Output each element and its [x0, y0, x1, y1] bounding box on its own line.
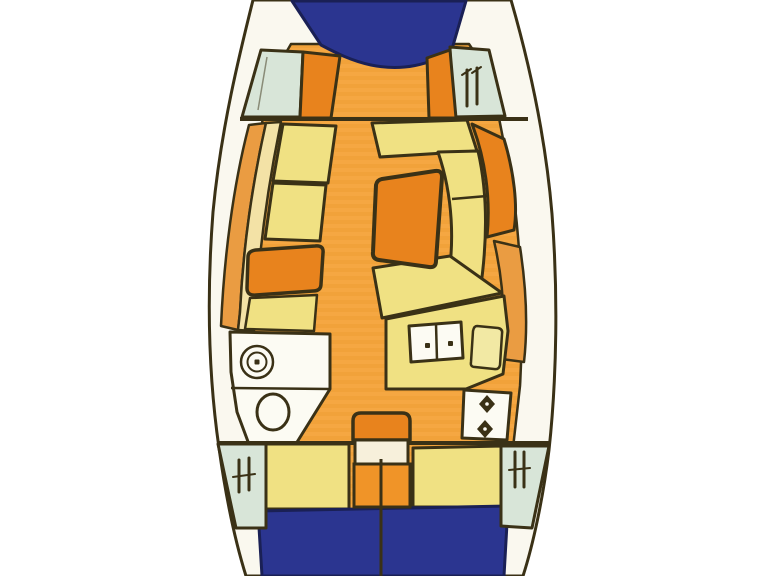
- sink-drain: [255, 360, 260, 365]
- companionway-steps: [353, 413, 410, 440]
- boat-plan-canvas: [0, 0, 768, 576]
- vberth-stbd: [427, 50, 456, 118]
- settee-fwd: [273, 124, 336, 183]
- stove-burner-center: [485, 402, 489, 406]
- sink-drain: [448, 341, 453, 346]
- deck-plan-drawing: [0, 0, 768, 576]
- sink-drain: [425, 343, 430, 348]
- aft-berth-port: [258, 444, 349, 509]
- head-divider-line: [231, 388, 330, 389]
- galley-icebox: [471, 326, 502, 369]
- toilet: [257, 394, 289, 430]
- aft-berth-stbd: [413, 446, 501, 507]
- settee-aft: [265, 183, 326, 241]
- salon-table: [373, 171, 442, 267]
- galley-sink-divider: [436, 324, 437, 360]
- stern-deck: [258, 506, 508, 576]
- chart-table: [247, 246, 323, 295]
- stove-burner-center: [483, 427, 487, 431]
- settee-strip: [245, 295, 317, 331]
